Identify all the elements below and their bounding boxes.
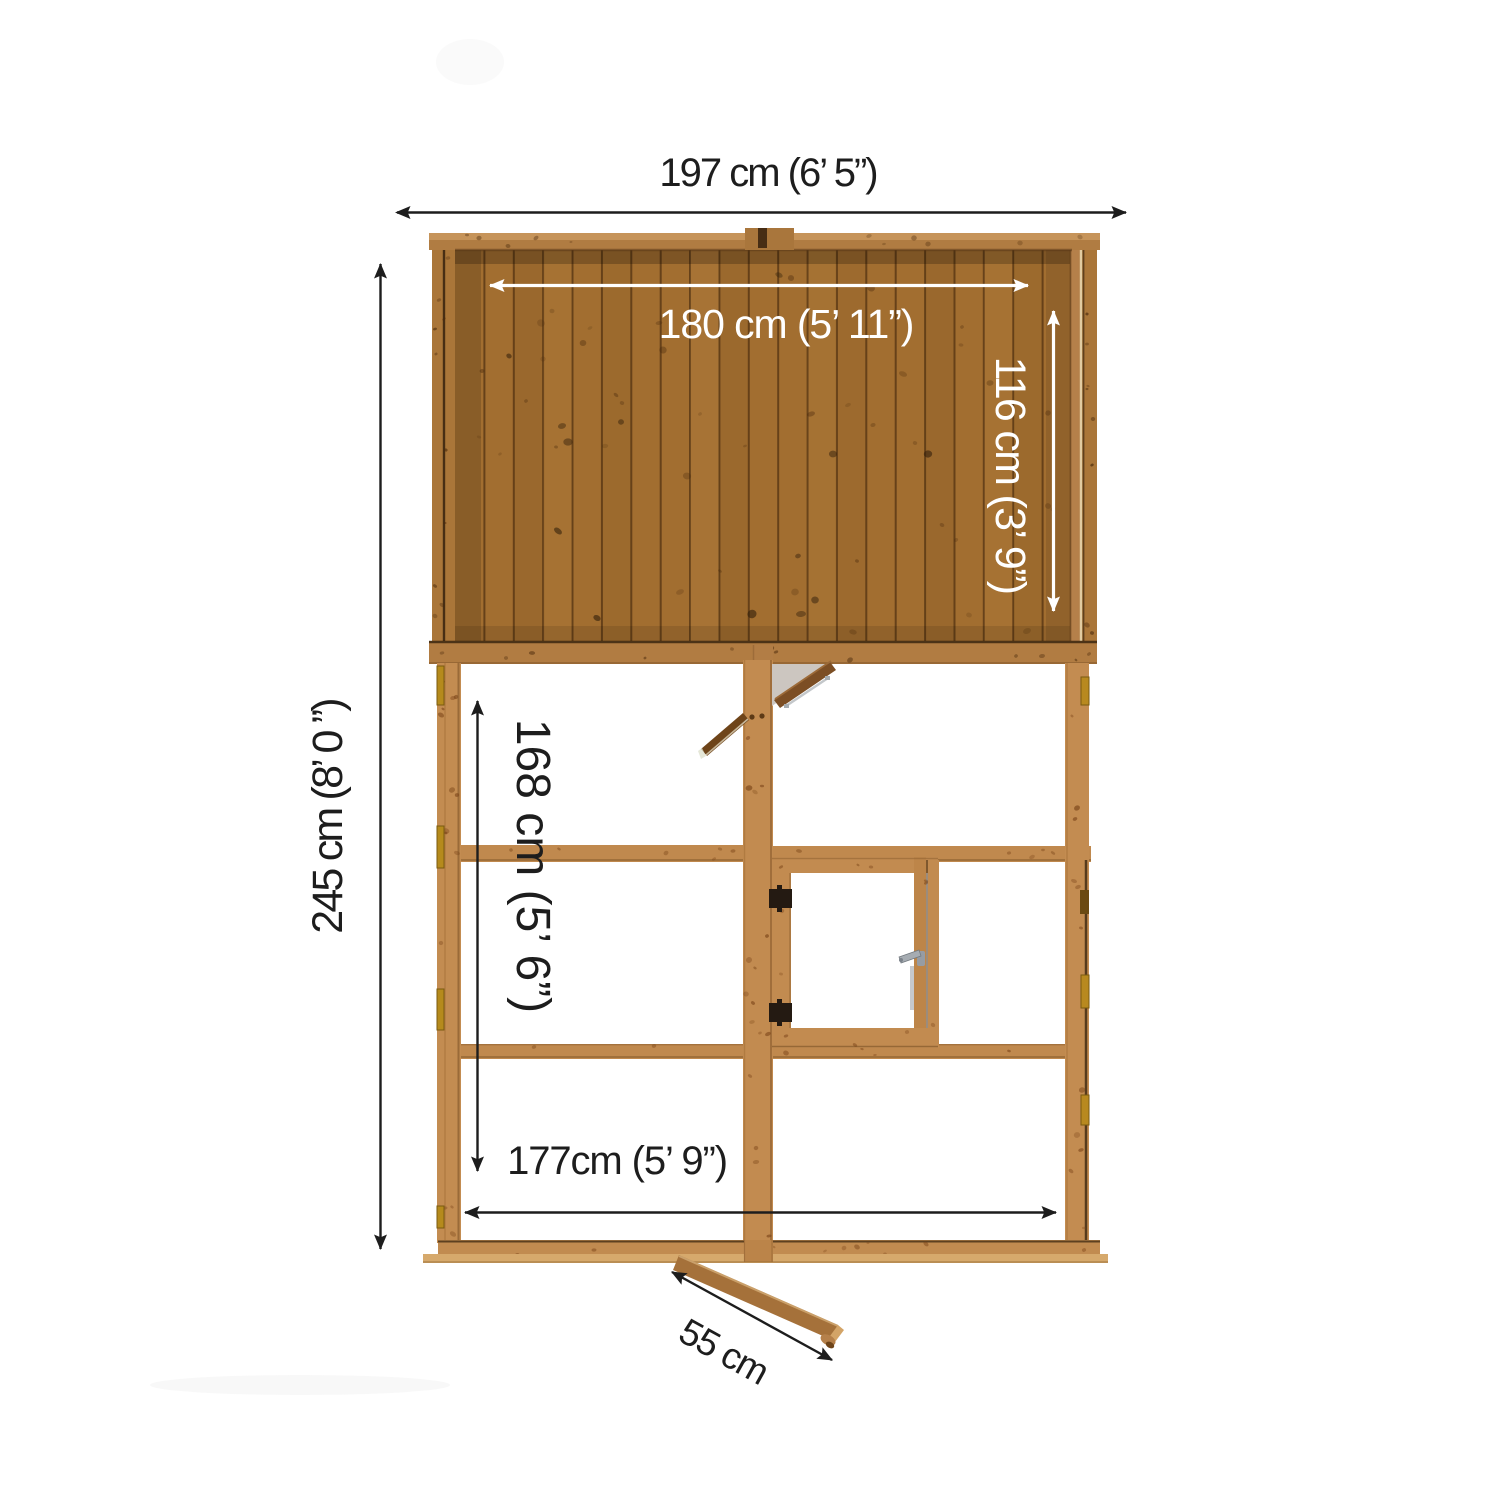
svg-text:197 cm (6’ 5”): 197 cm (6’ 5”) [659,151,876,195]
svg-text:245 cm (8’ 0 ”): 245 cm (8’ 0 ”) [304,700,352,934]
svg-text:180 cm (5’ 11”): 180 cm (5’ 11”) [659,301,914,347]
svg-text:168 cm (5’ 6”): 168 cm (5’ 6”) [506,719,559,1013]
svg-text:177cm (5’ 9”): 177cm (5’ 9”) [507,1139,727,1183]
svg-text:116 cm (3’ 9”): 116 cm (3’ 9”) [986,357,1034,594]
